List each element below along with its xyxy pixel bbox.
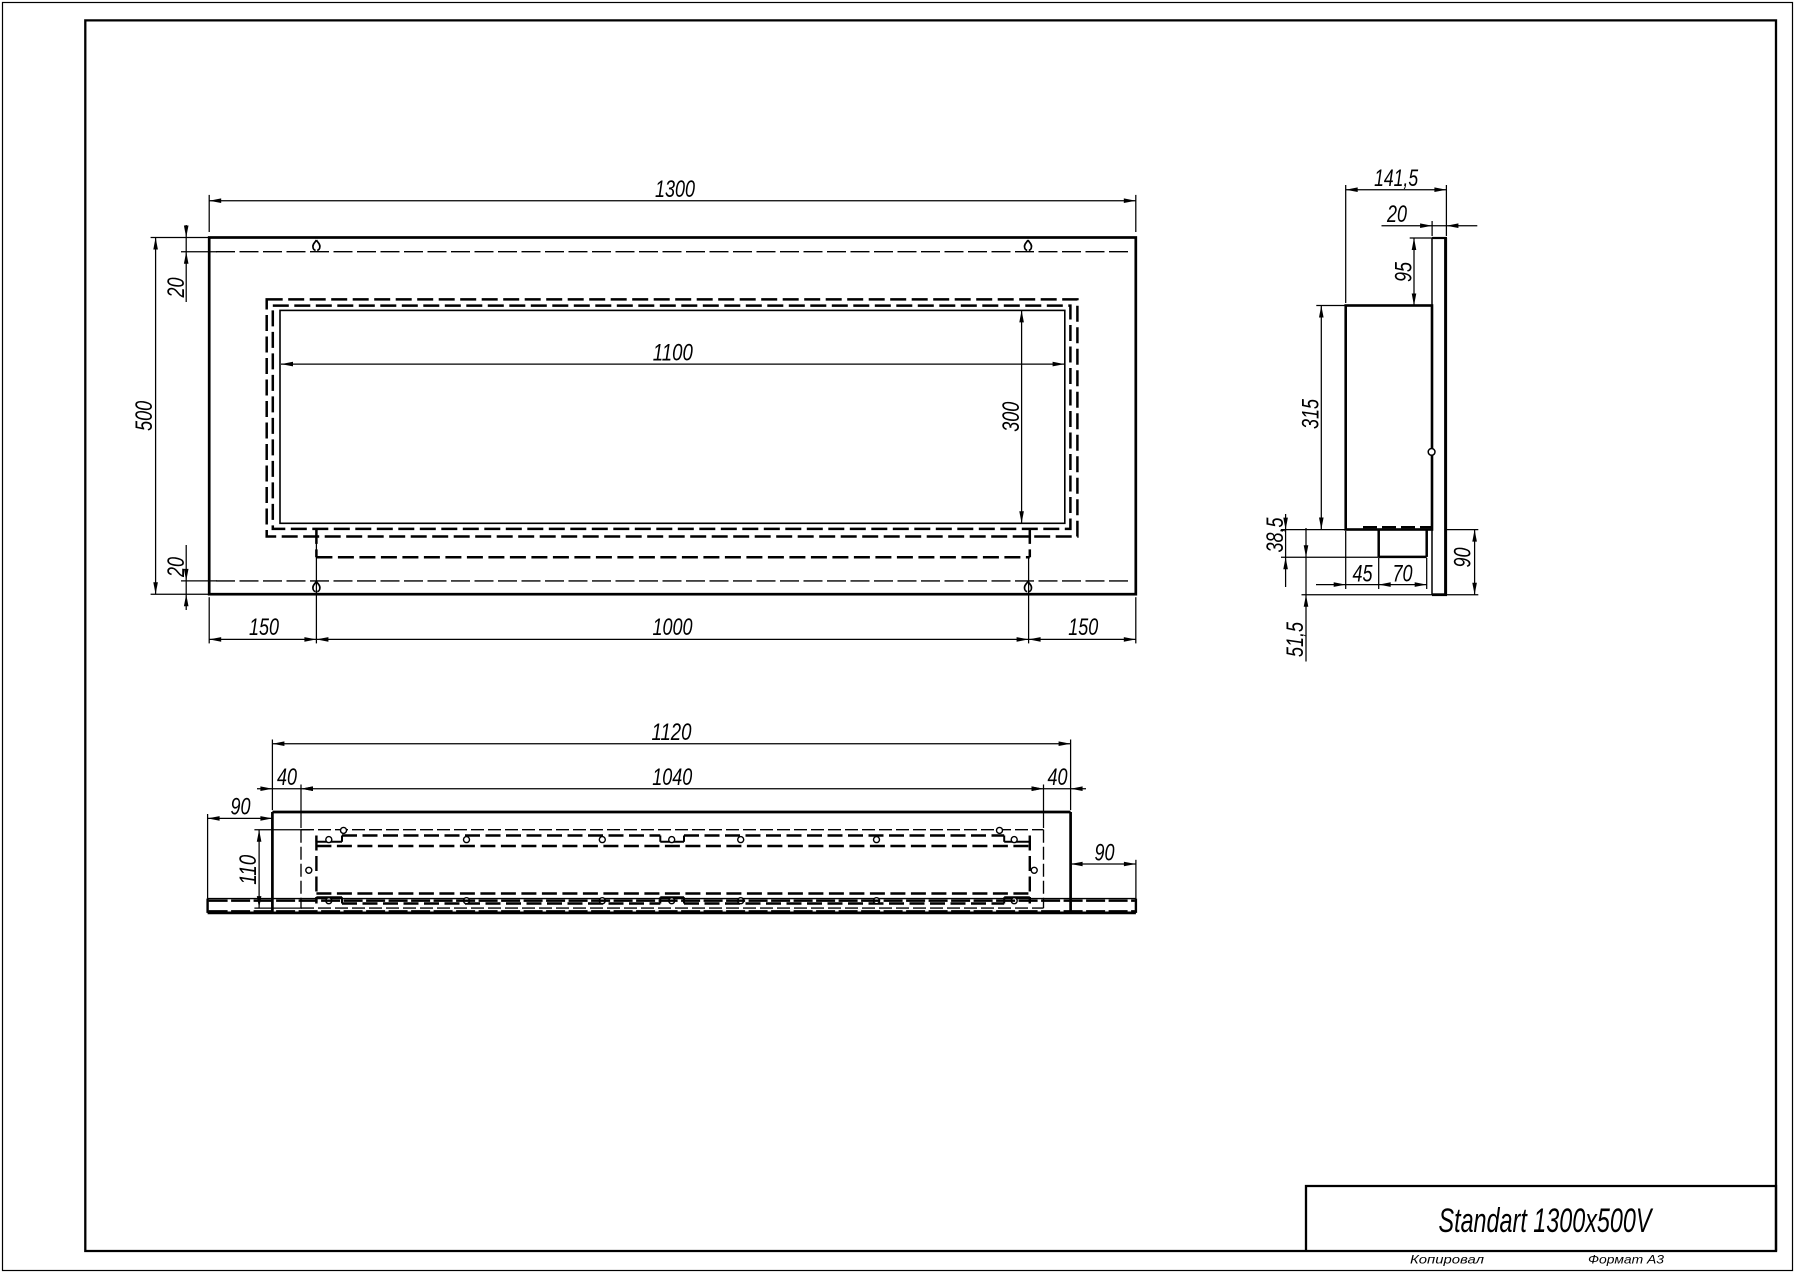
svg-text:90: 90 bbox=[1450, 547, 1477, 567]
svg-text:1120: 1120 bbox=[652, 719, 693, 746]
svg-text:141,5: 141,5 bbox=[1374, 165, 1418, 192]
svg-text:20: 20 bbox=[163, 557, 190, 578]
svg-text:1000: 1000 bbox=[653, 614, 693, 641]
svg-text:1300: 1300 bbox=[655, 176, 695, 203]
svg-text:90: 90 bbox=[1095, 839, 1115, 866]
svg-text:20: 20 bbox=[1386, 201, 1407, 228]
svg-text:Standart 1300x500V: Standart 1300x500V bbox=[1439, 1202, 1654, 1240]
svg-text:90: 90 bbox=[231, 794, 251, 821]
svg-text:Формат А3: Формат А3 bbox=[1588, 1253, 1664, 1267]
svg-text:315: 315 bbox=[1298, 399, 1325, 429]
svg-text:110: 110 bbox=[235, 854, 262, 885]
svg-text:Копировал: Копировал bbox=[1410, 1253, 1484, 1267]
svg-text:150: 150 bbox=[249, 614, 279, 641]
svg-text:95: 95 bbox=[1390, 262, 1417, 282]
svg-text:500: 500 bbox=[131, 400, 158, 430]
svg-text:40: 40 bbox=[1048, 764, 1068, 791]
svg-text:51,5: 51,5 bbox=[1282, 622, 1309, 657]
svg-text:20: 20 bbox=[163, 277, 190, 298]
svg-text:40: 40 bbox=[277, 764, 297, 791]
svg-text:300: 300 bbox=[998, 401, 1025, 431]
svg-text:1100: 1100 bbox=[653, 339, 694, 366]
svg-text:38,5: 38,5 bbox=[1262, 517, 1289, 552]
svg-text:150: 150 bbox=[1068, 614, 1098, 641]
svg-text:45: 45 bbox=[1353, 560, 1373, 587]
svg-text:70: 70 bbox=[1393, 560, 1413, 587]
svg-text:1040: 1040 bbox=[652, 764, 692, 791]
